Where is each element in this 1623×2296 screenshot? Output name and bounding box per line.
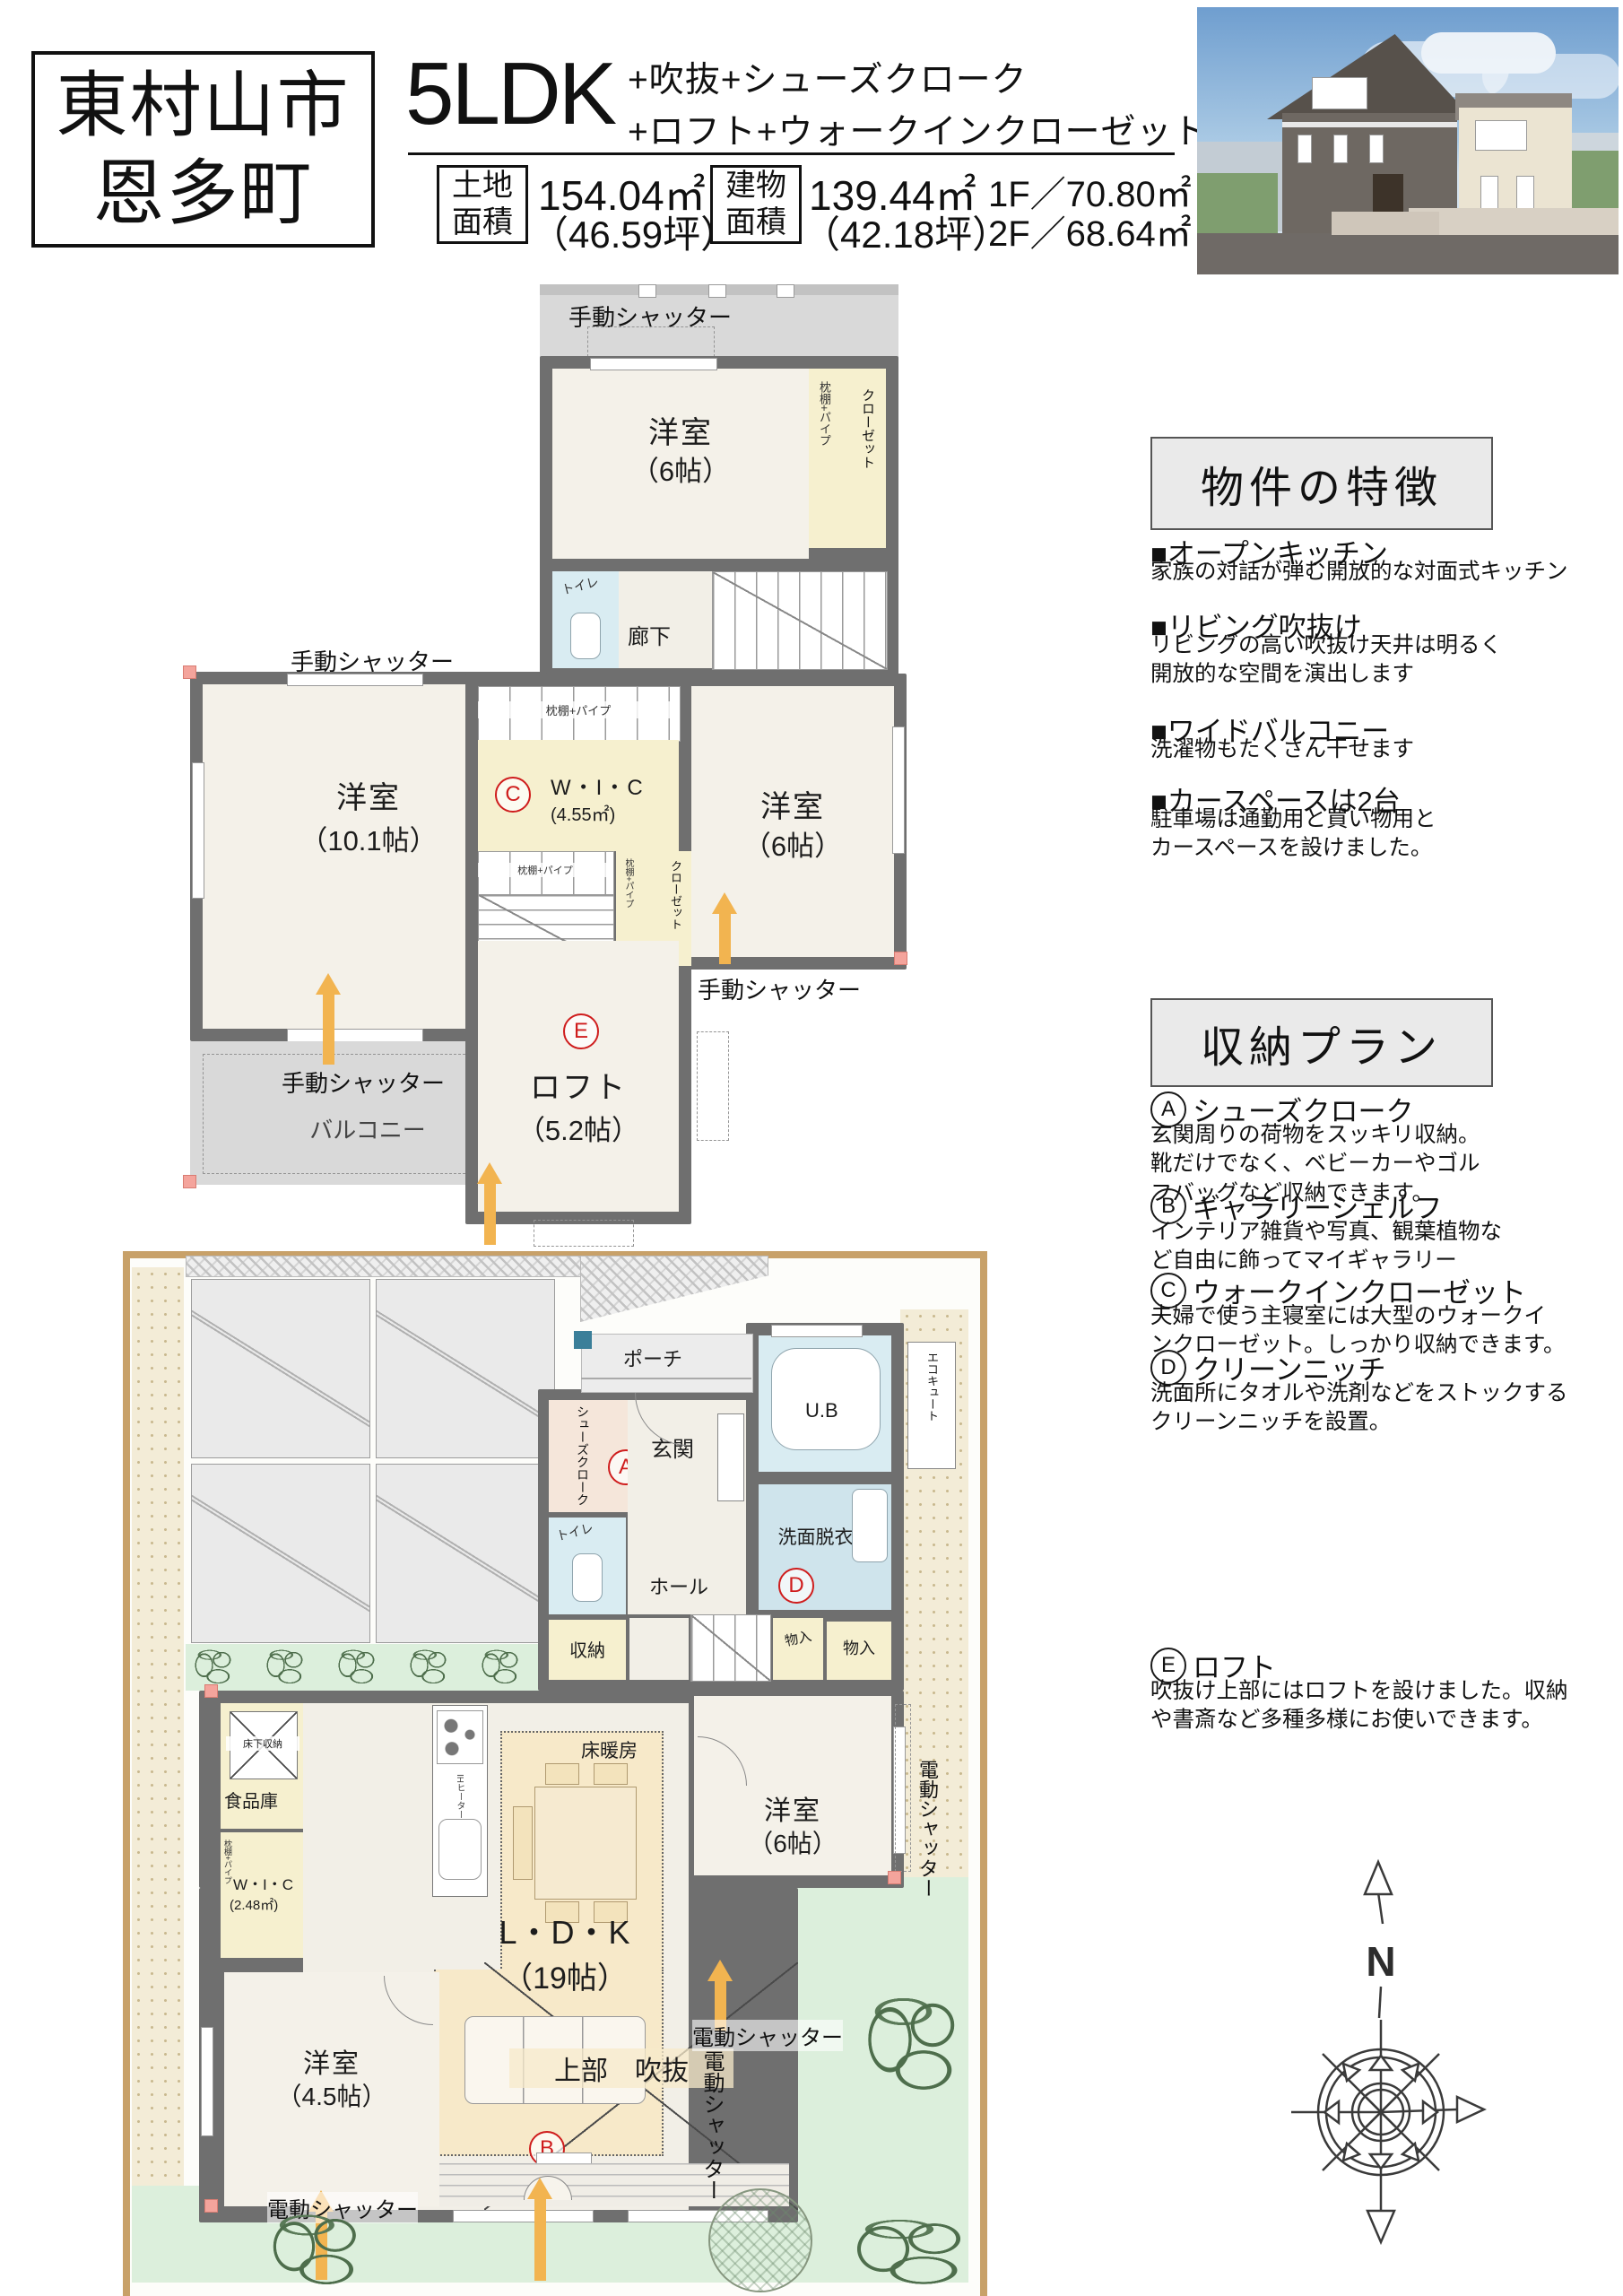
road (1197, 233, 1619, 274)
shoe-cabinet (717, 1413, 744, 1501)
feature-4-body: 駐車場は通勤用と買い物用と カースペースを設けました。 (1150, 805, 1572, 864)
chair (594, 1763, 628, 1785)
ih-heater-label: IHヒーター (453, 1774, 466, 1819)
1f-wic: 枕棚+パイプ W・I・C (2.48㎡) (221, 1832, 303, 1958)
2f-loft-mark: E (563, 1013, 599, 1049)
hedge-left (1197, 173, 1278, 236)
entry-arrow (316, 973, 341, 1065)
2f-toilet: トイレ (552, 571, 619, 668)
e-shutter-mid-vert: 電動シャッター (696, 2050, 727, 2201)
tree (856, 1989, 968, 2101)
parking-pad (191, 1464, 370, 1643)
plant (477, 1647, 524, 1688)
underfloor-storage-label: 床下収納 (226, 1736, 299, 1751)
1f-wic-name: W・I・C (233, 1872, 293, 1894)
corner-marker (183, 1175, 196, 1188)
ecocute-label: エコキュート (924, 1352, 941, 1422)
header-divider (408, 152, 1175, 155)
1f-stairs (690, 1614, 771, 1682)
window (1475, 120, 1527, 151)
1f-toilet: トイレ (549, 1518, 626, 1614)
stove (437, 1710, 483, 1764)
e-shutter-right: 電動シャッター (913, 1760, 942, 1898)
window (1369, 135, 1384, 163)
storage-4-body: 洗面所にタオルや洗剤などをストックする クリーンニッチを設置。 (1150, 1379, 1572, 1438)
2f-wic-name: W・I・C (551, 770, 645, 801)
2f-shutter-label-balcony: 手動シャッター (260, 1065, 466, 1099)
compass-rose (1291, 1857, 1488, 2296)
feature-line-2: +ロフト+ウォークインクローゼット (628, 104, 1209, 154)
feature-2-body: リビングの高い吹抜け天井は明るく 開放的な空間を演出します (1150, 631, 1572, 690)
corner-marker (888, 1871, 901, 1884)
sink (438, 1819, 482, 1880)
window (287, 674, 423, 686)
shelf-pipe-label: 枕棚+パイプ (478, 701, 679, 718)
cloud (1421, 32, 1556, 74)
house-photo (1197, 7, 1619, 274)
2f-loft-name: ロフト (478, 1063, 679, 1107)
balcony-tick (638, 284, 656, 298)
2f-wic-size: (4.55㎡) (551, 800, 615, 826)
1f-bedroom6-name: 洋室 (694, 1788, 891, 1828)
toilet-fixture (572, 1553, 603, 1602)
2f-bedroom-right-size: （6帖） (691, 823, 894, 864)
2f-balcony-label: バルコニー (278, 1112, 457, 1145)
parking-pad (191, 1279, 370, 1458)
window (590, 358, 717, 370)
closet-label: クローゼット (858, 388, 877, 469)
unit-bath-label: U.B (805, 1399, 838, 1422)
closet-shelf-label: 枕棚+パイプ (621, 858, 635, 909)
location-town: 恩多町 (93, 150, 314, 238)
2f-closet-top: 枕棚+パイプ クローゼット (809, 369, 886, 548)
corner-marker (204, 1684, 218, 1698)
storage-2-body: インテリア雑貨や写真、観葉植物な ど自由に飾ってマイギャラリー (1150, 1218, 1572, 1276)
plant (190, 1647, 237, 1688)
2f-wic-mark: C (495, 777, 531, 813)
1f-closet-b-label: 物入 (827, 1636, 891, 1659)
2f-bedroom-top-size: （6帖） (552, 448, 809, 489)
location-city: 東村山市 (56, 62, 351, 150)
chair (545, 1763, 579, 1785)
porch-step (581, 1378, 751, 1379)
land-area-label: 土地 面積 (437, 165, 528, 244)
tree (262, 2208, 369, 2293)
ecocute-unit: エコキュート (907, 1342, 956, 1469)
2f-toilet-label: トイレ (560, 572, 601, 599)
tree (708, 2188, 812, 2292)
balcony-rail (1282, 122, 1457, 127)
window (201, 2027, 213, 2136)
feature-1-body: 家族の対話が弾む開放的な対面式キッチン (1150, 558, 1572, 587)
feature-3-body: 洗濯物もたくさん干せます (1150, 735, 1572, 764)
corner-marker (204, 2199, 218, 2213)
corner-marker (183, 665, 196, 679)
entry-arrow (527, 2178, 552, 2281)
toilet-fixture (570, 613, 601, 659)
bench (513, 1806, 533, 1880)
e-shutter-mid: 電動シャッター (692, 2020, 843, 2051)
1f-wic-size: (2.48㎡) (230, 1895, 278, 1914)
feature-line-1: +吹抜+シューズクローク (628, 52, 1028, 102)
plant (334, 1647, 380, 1688)
building-2f-area: 2F／68.64㎡ (988, 204, 1192, 257)
corner-marker (894, 952, 907, 965)
window (892, 726, 905, 854)
washroom-mark: D (778, 1568, 814, 1604)
1f-bedroom45-size: （4.5帖） (224, 2077, 439, 2113)
2f-bedroom-right-name: 洋室 (691, 782, 894, 826)
dining-table (534, 1787, 637, 1900)
location-box: 東村山市 恩多町 (31, 51, 375, 248)
shutter-dashed-box (587, 326, 715, 357)
parking-pad (376, 1464, 555, 1643)
kitchen-counter: IHヒーター (432, 1705, 488, 1897)
hall-label: ホール (649, 1571, 708, 1600)
closet-label: クローゼット (667, 860, 684, 930)
washbasin (852, 1489, 888, 1562)
parking-pad (376, 1279, 555, 1458)
floor-heating-label: 床暖房 (581, 1736, 638, 1763)
driveway (1409, 208, 1619, 235)
storage-5-body: 吹抜け上部にはロフトを設けました。収納 や書斎など多種多様にお使いできます。 (1150, 1677, 1572, 1735)
ldk-name: L・D・K (466, 1907, 664, 1953)
dashed-opening (534, 1220, 634, 1247)
window (1333, 135, 1348, 163)
features-panel-title: 物件の特徴 (1150, 437, 1493, 530)
entry-arrow (713, 892, 736, 964)
dashed-opening (697, 1031, 729, 1141)
pantry-label: 食品庫 (224, 1787, 278, 1813)
shutter-dashed (895, 1704, 911, 1872)
2f-stairs (712, 571, 888, 670)
window (771, 1325, 863, 1337)
building-area-tsubo: （42.18坪） (803, 204, 1010, 259)
window (453, 2210, 594, 2222)
compass-north-label: N (1354, 1937, 1408, 1986)
balcony-tick (777, 284, 794, 298)
shoes-cloak-label: シューズクローク (574, 1405, 592, 1506)
shelf-pipe-label: 枕棚+パイプ (478, 863, 612, 877)
1f-bedroom6-size: （6帖） (694, 1824, 891, 1860)
1f-hall-lower (629, 1618, 689, 1680)
1f-toilet-label: トイレ (554, 1518, 595, 1545)
gravel-strip-left (132, 1267, 184, 2186)
plant (405, 1647, 452, 1688)
2f-corridor-label: 廊下 (628, 619, 671, 650)
1f-bedroom45-name: 洋室 (224, 2041, 439, 2081)
1f-storage-label: 収納 (549, 1636, 626, 1662)
porch-label: ポーチ (623, 1344, 682, 1372)
window (1298, 135, 1312, 163)
building-area-label: 建物 面積 (710, 165, 802, 244)
balcony-tick (708, 284, 726, 298)
entry-arrow (477, 1162, 502, 1245)
plant (262, 1647, 308, 1688)
planter (574, 1331, 592, 1349)
flyer-sheet: 東村山市 恩多町 5LDK +吹抜+シューズクローク +ロフト+ウォークインクロ… (0, 0, 1623, 2296)
closet-shelf-label: 枕棚+パイプ (816, 381, 833, 447)
2f-loft-size: （5.2帖） (478, 1108, 679, 1148)
storage-panel-title: 収納プラン (1150, 998, 1493, 1087)
land-area-tsubo: （46.59坪） (531, 204, 738, 259)
2f-shutter-label-right: 手動シャッター (698, 972, 861, 1005)
2f-bedroom-top-name: 洋室 (552, 408, 809, 452)
window (1312, 77, 1367, 109)
tree (843, 2213, 977, 2292)
entry-steps (1332, 212, 1439, 235)
layout-type: 5LDK (405, 43, 614, 144)
